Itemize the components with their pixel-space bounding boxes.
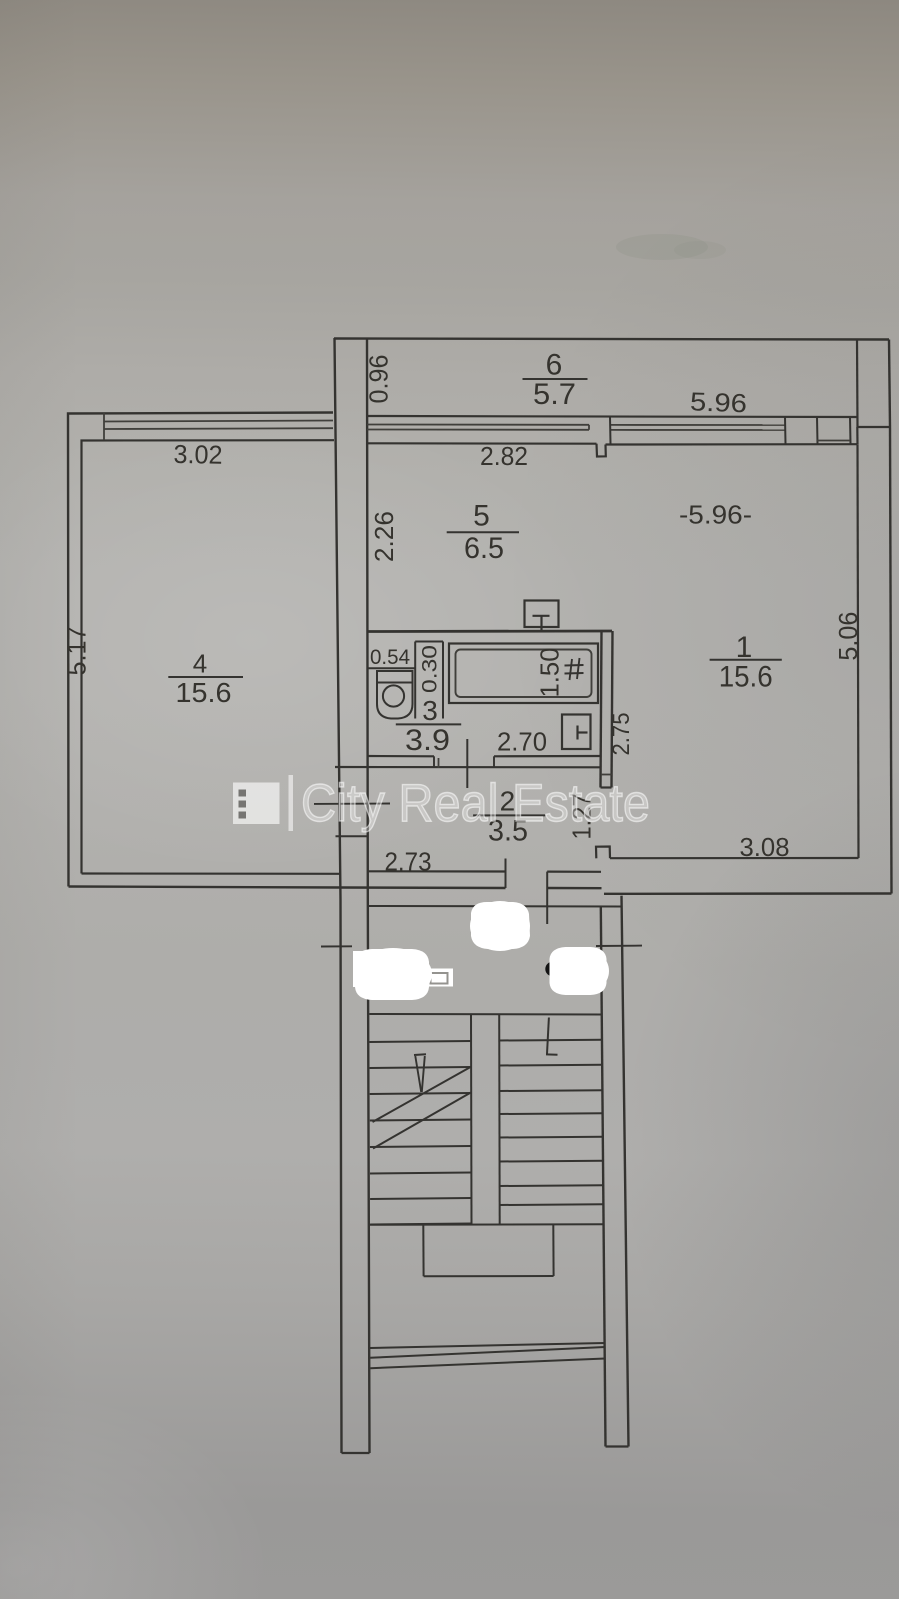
svg-text:5.96: 5.96 (689, 386, 747, 418)
svg-text:2.73: 2.73 (385, 846, 432, 876)
svg-text:15.6: 15.6 (176, 677, 232, 708)
svg-text:2.75: 2.75 (608, 713, 635, 756)
svg-text:0.54: 0.54 (370, 646, 410, 669)
svg-text:3.02: 3.02 (173, 439, 223, 470)
svg-text:2.26: 2.26 (369, 511, 399, 562)
svg-text:5: 5 (473, 500, 490, 533)
svg-text:3.9: 3.9 (405, 724, 450, 757)
svg-text:5.17: 5.17 (61, 627, 91, 676)
svg-text:2.82: 2.82 (480, 441, 528, 471)
svg-text:6: 6 (546, 349, 563, 382)
svg-text:City Real Estate: City Real Estate (301, 774, 650, 833)
svg-text:-5.96-: -5.96- (679, 500, 752, 530)
svg-text:0.96: 0.96 (363, 355, 393, 404)
svg-text:4: 4 (193, 648, 207, 678)
svg-text:15.6: 15.6 (719, 661, 773, 694)
svg-text:1.50: 1.50 (534, 648, 564, 698)
svg-text:5.7: 5.7 (533, 378, 576, 411)
svg-text:3.08: 3.08 (740, 832, 790, 862)
svg-text:0.30: 0.30 (418, 645, 441, 693)
svg-text:3: 3 (422, 695, 438, 726)
svg-text:2.70: 2.70 (497, 726, 547, 756)
svg-text:5.06: 5.06 (833, 612, 863, 661)
svg-text:6.5: 6.5 (464, 532, 504, 565)
